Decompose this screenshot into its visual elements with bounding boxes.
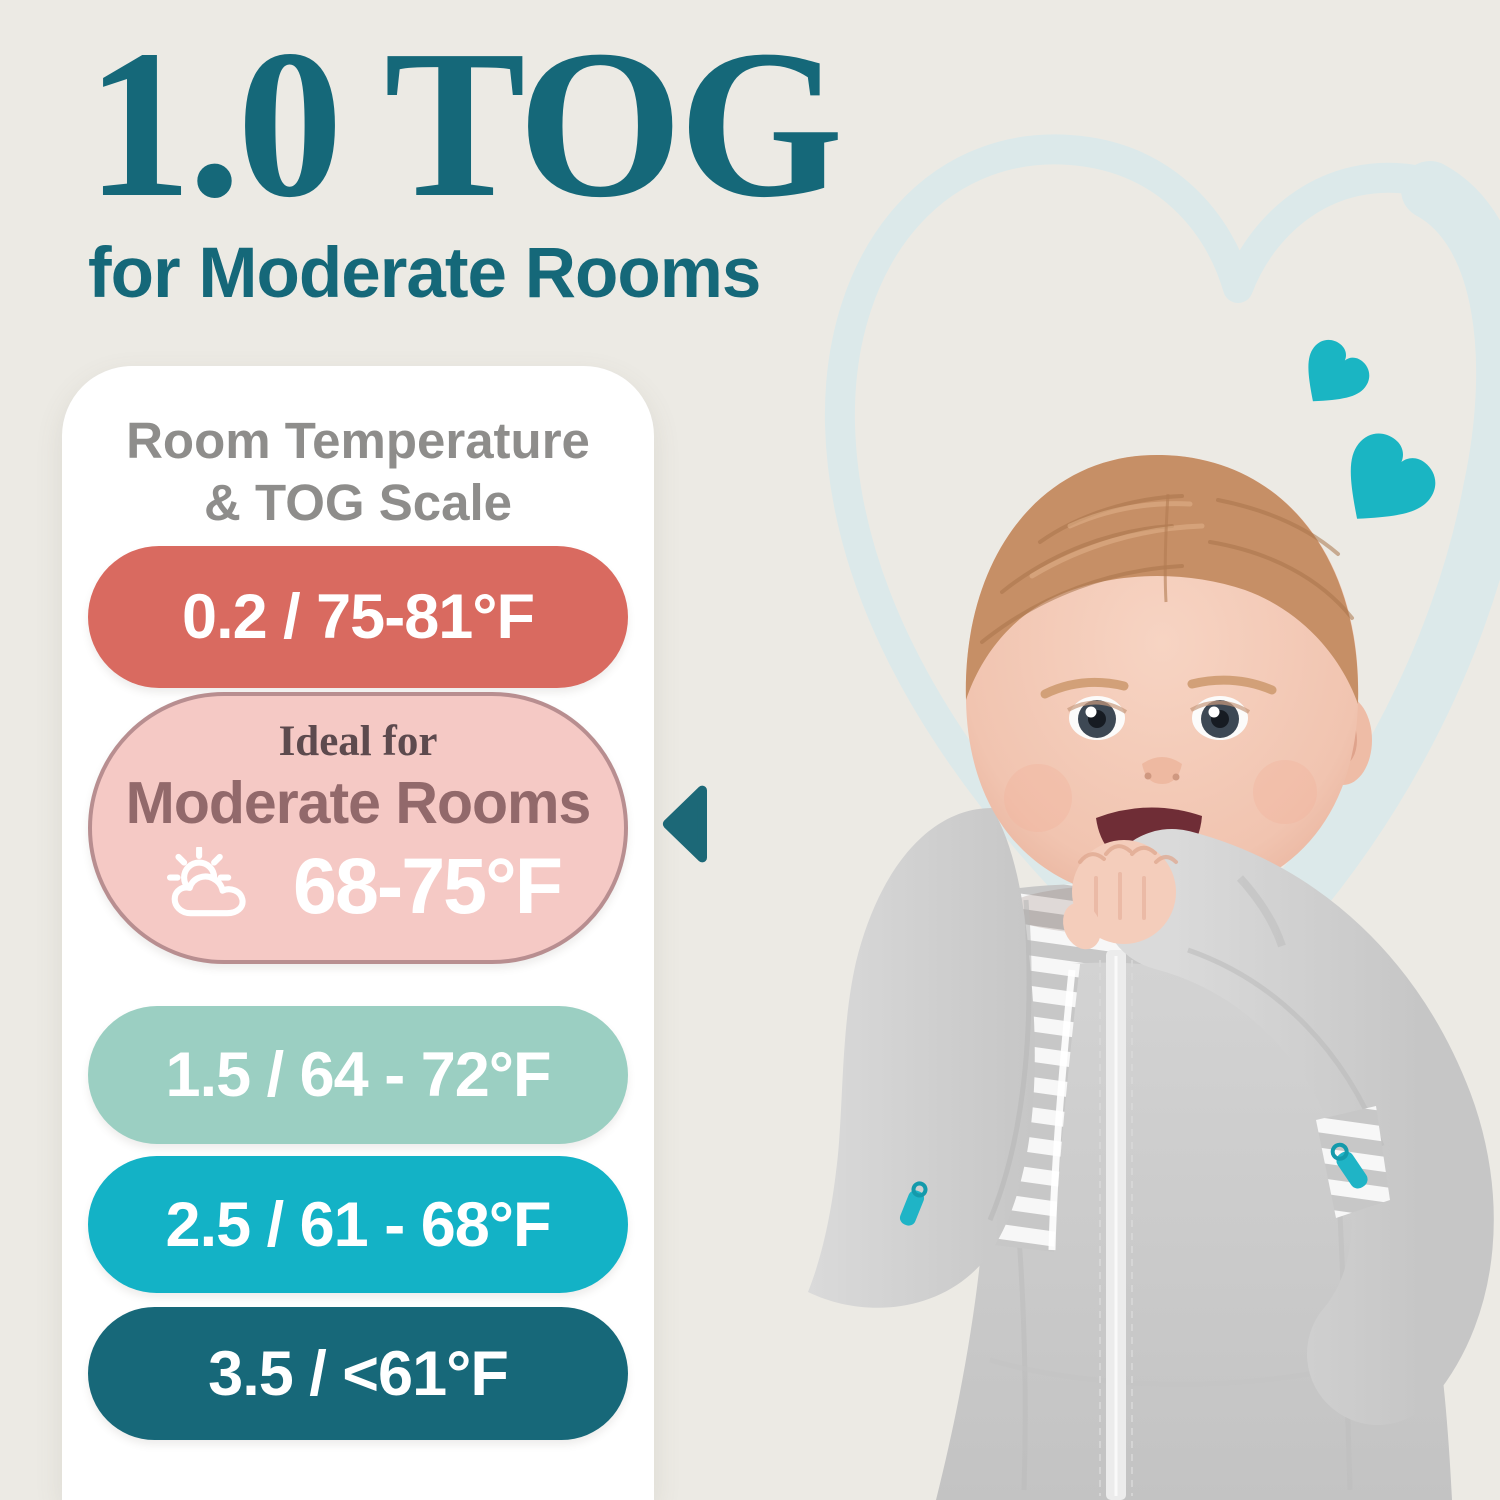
- tog-row-0-2: 0.2 / 75-81°F: [88, 546, 628, 688]
- ideal-temp-range: 68-75°F: [293, 846, 561, 925]
- card-heading: Room Temperature & TOG Scale: [62, 410, 654, 534]
- ideal-for-label: Ideal for: [279, 718, 438, 765]
- page-title: 1.0 TOG: [86, 18, 840, 230]
- canvas: { "header": { "title": "1.0 TOG", "subti…: [0, 0, 1500, 1500]
- tog-scale-card: Room Temperature & TOG Scale 0.2 / 75-81…: [62, 366, 654, 1500]
- small-heart-icon: [1287, 333, 1376, 422]
- page-subtitle: for Moderate Rooms: [88, 238, 760, 309]
- tog-row-2-5: 2.5 / 61 - 68°F: [88, 1156, 628, 1293]
- tog-row-1-5: 1.5 / 64 - 72°F: [88, 1006, 628, 1144]
- card-heading-line2: & TOG Scale: [62, 472, 654, 534]
- sun-behind-cloud-icon: [155, 847, 277, 925]
- tog-row-label: 2.5 / 61 - 68°F: [166, 1189, 551, 1261]
- room-type-label: Moderate Rooms: [126, 771, 591, 836]
- card-heading-line1: Room Temperature: [62, 410, 654, 472]
- tog-row-label: 0.2 / 75-81°F: [182, 581, 534, 653]
- tog-row-label: 3.5 / <61°F: [208, 1338, 508, 1410]
- swaddle-left-wing: [808, 808, 1035, 1308]
- tog-row-1-0-highlight: Ideal for Moderate Rooms 68-75°F: [88, 692, 628, 964]
- tog-row-3-5: 3.5 / <61°F: [88, 1307, 628, 1440]
- ideal-row-indicator-arrow: [659, 783, 707, 865]
- baby-photo: [740, 430, 1500, 1500]
- tog-row-label: 1.5 / 64 - 72°F: [166, 1039, 551, 1111]
